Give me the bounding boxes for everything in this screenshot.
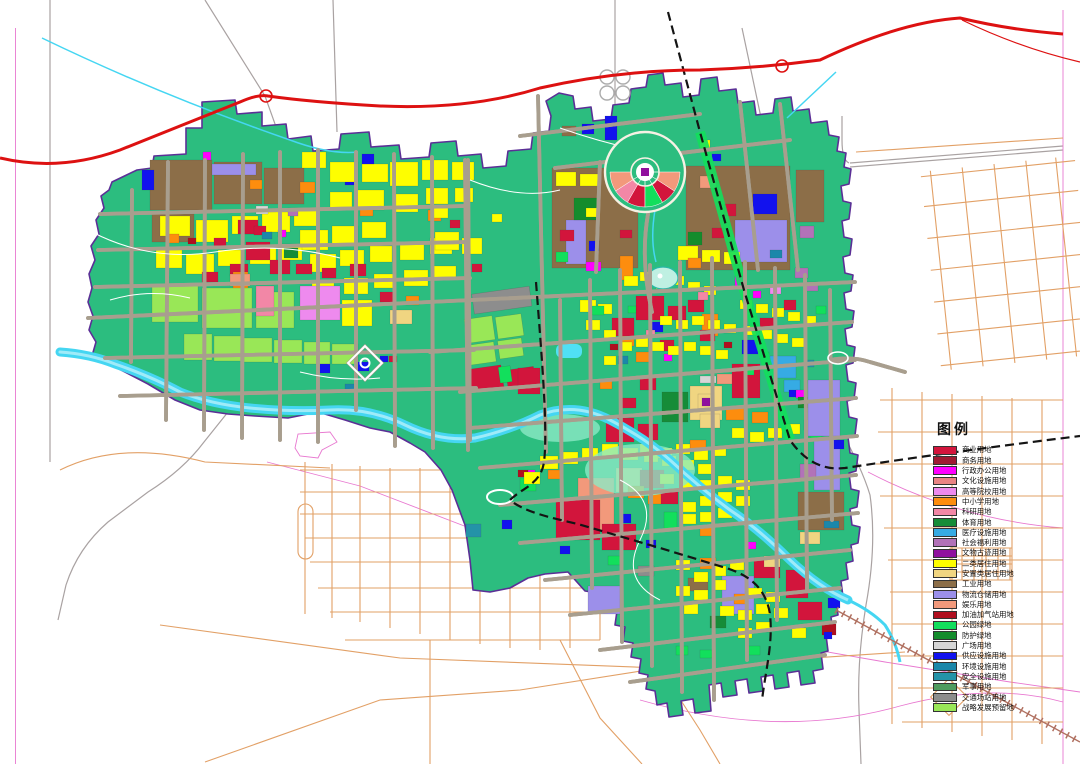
land-parcel <box>748 542 756 549</box>
legend-item: 高等院校用地 <box>933 486 1075 496</box>
land-parcel <box>322 268 336 278</box>
legend-item: 商务用地 <box>933 455 1075 465</box>
legend-item-label: 加油加气站用地 <box>962 611 1014 618</box>
road-segment <box>850 146 1063 163</box>
legend-item: 行政办公用地 <box>933 466 1075 476</box>
legend-item-label: 安置类居住用地 <box>962 570 1014 577</box>
land-parcel <box>636 338 648 347</box>
legend-item: 医疗设施用地 <box>933 527 1075 537</box>
legend-item: 商业用地 <box>933 445 1075 455</box>
legend-swatch <box>933 672 957 681</box>
land-parcel <box>262 212 290 232</box>
legend-item: 文化设施用地 <box>933 476 1075 486</box>
legend-swatch <box>933 466 957 475</box>
fan-shaped-district <box>605 132 685 212</box>
legend-item: 供应设施用地 <box>933 651 1075 661</box>
land-parcel <box>682 514 696 524</box>
land-parcel <box>753 194 777 214</box>
legend-item-label: 军事用地 <box>962 683 992 690</box>
land-parcel <box>218 250 242 266</box>
legend-swatch <box>933 549 957 558</box>
land-parcel <box>698 292 708 300</box>
legend-swatch <box>933 693 957 702</box>
land-parcel <box>796 390 805 398</box>
land-parcel <box>698 464 712 474</box>
legend-item: 物流仓储用地 <box>933 589 1075 599</box>
land-parcel <box>466 524 481 537</box>
land-parcel <box>566 220 586 264</box>
land-parcel <box>330 192 352 208</box>
land-parcel <box>452 162 474 180</box>
land-parcel <box>720 606 734 616</box>
land-parcel <box>834 440 844 449</box>
legend-swatch <box>933 508 957 517</box>
land-parcel <box>732 428 746 438</box>
land-parcel <box>560 230 574 241</box>
legend-item-label: 高等院校用地 <box>962 488 1006 495</box>
land-parcel <box>300 286 340 320</box>
legend-swatch <box>933 477 957 486</box>
legend-item-label: 商业用地 <box>962 446 992 453</box>
land-parcel <box>770 250 782 258</box>
legend-item-label: 供应设施用地 <box>962 652 1006 659</box>
legend-item: 中小学用地 <box>933 496 1075 506</box>
land-parcel <box>300 182 315 193</box>
land-parcel <box>660 316 672 325</box>
land-parcel <box>824 632 832 639</box>
legend-item-label: 体育用地 <box>962 519 992 526</box>
legend-item: 交通场站用地 <box>933 692 1075 702</box>
legend-swatch <box>933 528 957 537</box>
land-parcel <box>244 338 272 362</box>
legend-item-label: 医疗设施用地 <box>962 529 1006 536</box>
legend-item-label: 环境设施用地 <box>962 663 1006 670</box>
land-parcel <box>668 346 680 355</box>
land-parcel <box>684 604 698 614</box>
legend-swatch <box>933 652 957 661</box>
legend-item-label: 工业用地 <box>962 580 992 587</box>
legend-item-label: 科研用地 <box>962 508 992 515</box>
road-segment <box>856 138 1063 152</box>
land-parcel <box>214 238 226 246</box>
legend-swatch <box>933 611 957 620</box>
land-parcel <box>662 392 688 422</box>
land-parcel <box>692 316 704 325</box>
land-parcel <box>560 546 570 554</box>
land-parcel <box>652 342 664 351</box>
land-parcel <box>202 288 252 328</box>
land-parcel <box>264 168 304 204</box>
land-parcel <box>792 338 804 347</box>
legend-item-label: 社会福利用地 <box>962 539 1006 546</box>
land-parcel <box>784 300 796 310</box>
road-segment <box>921 161 1080 366</box>
legend-item: 文物古迹用地 <box>933 548 1075 558</box>
legend-item-label: 广场用地 <box>962 642 992 649</box>
legend-item-label: 交通场站用地 <box>962 694 1006 701</box>
land-parcel <box>717 374 733 384</box>
legend-item: 战略发展预留地 <box>933 702 1075 712</box>
road-segment <box>58 402 236 620</box>
legend-swatch <box>933 559 957 568</box>
land-parcel <box>716 350 728 359</box>
land-parcel <box>664 512 677 530</box>
land-parcel <box>362 154 374 164</box>
land-parcel <box>788 312 800 321</box>
land-parcel <box>798 602 822 620</box>
legend-swatch <box>933 703 957 712</box>
land-parcel <box>688 300 704 312</box>
land-parcel <box>700 414 720 428</box>
legend-item: 科研用地 <box>933 507 1075 517</box>
land-parcel <box>753 291 761 298</box>
legend-swatch <box>933 569 957 578</box>
land-parcel <box>682 502 696 512</box>
land-parcel <box>756 304 768 313</box>
legend-swatch <box>933 590 957 599</box>
land-parcel <box>495 314 524 339</box>
legend-item: 广场用地 <box>933 641 1075 651</box>
land-parcel <box>186 254 214 274</box>
legend-swatch <box>933 518 957 527</box>
land-parcel <box>776 334 788 343</box>
legend-item: 公园绿地 <box>933 620 1075 630</box>
land-parcel <box>694 590 708 600</box>
land-parcel <box>748 646 760 655</box>
land-parcel <box>700 346 712 355</box>
legend-item-label: 中小学用地 <box>962 498 999 505</box>
legend-rows: 商业用地商务用地行政办公用地文化设施用地高等院校用地中小学用地科研用地体育用地医… <box>933 445 1075 713</box>
land-parcel <box>586 262 601 271</box>
road-segment <box>205 668 660 762</box>
land-parcel <box>296 264 312 274</box>
legend-item-label: 公园绿地 <box>962 621 992 628</box>
legend-item: 二类居住用地 <box>933 558 1075 568</box>
legend-item-label: 防护绿地 <box>962 632 992 639</box>
land-parcel <box>518 368 540 394</box>
land-parcel <box>684 342 696 351</box>
land-parcel <box>450 220 460 228</box>
legend-swatch <box>933 662 957 671</box>
legend-swatch <box>933 456 957 465</box>
land-parcel <box>492 214 502 222</box>
land-parcel <box>422 160 448 180</box>
legend-item-label: 战略发展预留地 <box>962 704 1014 711</box>
land-parcel <box>620 230 632 238</box>
land-parcel <box>800 226 814 238</box>
land-parcel <box>712 154 721 161</box>
legend-swatch <box>933 580 957 589</box>
land-parcel <box>622 398 636 408</box>
land-parcel <box>586 320 600 330</box>
land-parcel <box>592 306 604 315</box>
land-parcel <box>548 470 560 479</box>
land-parcel <box>702 398 710 406</box>
land-parcel <box>605 116 617 140</box>
road-segment <box>930 158 1076 370</box>
land-parcel <box>370 246 392 262</box>
legend-item-label: 行政办公用地 <box>962 467 1006 474</box>
legend-swatch <box>933 446 957 455</box>
land-parcel <box>752 412 768 423</box>
land-parcel <box>502 520 512 529</box>
legend-swatch <box>933 538 957 547</box>
land-parcel <box>640 378 656 390</box>
legend-swatch <box>933 487 957 496</box>
legend-item-label: 商务用地 <box>962 457 992 464</box>
legend-item: 体育用地 <box>933 517 1075 527</box>
legend-swatch <box>933 497 957 506</box>
legend-swatch <box>933 641 957 650</box>
land-parcel <box>250 180 262 189</box>
legend-swatch <box>933 683 957 692</box>
road-segment <box>560 640 642 764</box>
land-parcel <box>498 366 512 384</box>
land-parcel <box>816 306 826 314</box>
legend-item: 工业用地 <box>933 579 1075 589</box>
land-parcel <box>694 572 708 582</box>
land-parcel <box>362 222 386 238</box>
land-parcel <box>792 628 806 638</box>
land-parcel <box>188 238 196 244</box>
legend-swatch <box>933 621 957 630</box>
legend-item: 防护绿地 <box>933 630 1075 640</box>
land-parcel <box>468 342 497 365</box>
legend-swatch <box>933 631 957 640</box>
legend-item-label: 安全设施用地 <box>962 673 1006 680</box>
land-parcel <box>604 356 616 365</box>
land-parcel <box>330 162 358 182</box>
land-parcel <box>350 264 366 276</box>
land-parcel <box>800 532 820 544</box>
land-parcel <box>628 306 636 313</box>
land-parcel <box>340 250 364 266</box>
legend-item-label: 物流仓储用地 <box>962 591 1006 598</box>
legend-item-label: 二类居住用地 <box>962 560 1006 567</box>
land-parcel <box>362 164 388 182</box>
land-parcel <box>160 216 190 236</box>
land-parcel <box>624 276 638 286</box>
land-parcel <box>636 352 649 362</box>
land-parcel <box>808 380 840 436</box>
land-parcel <box>688 232 702 245</box>
land-parcel <box>472 264 482 272</box>
land-parcel <box>142 170 154 190</box>
landuse-planning-map-page: 图例 商业用地商务用地行政办公用地文化设施用地高等院校用地中小学用地科研用地体育… <box>0 0 1080 764</box>
land-parcel <box>824 521 839 528</box>
legend-swatch <box>933 600 957 609</box>
legend-item-label: 文化设施用地 <box>962 477 1006 484</box>
legend-item: 军事用地 <box>933 682 1075 692</box>
land-parcel <box>556 172 576 186</box>
land-parcel <box>796 170 824 222</box>
legend-title: 图例 <box>937 419 1075 439</box>
legend-item: 加油加气站用地 <box>933 610 1075 620</box>
land-parcel <box>610 344 618 350</box>
land-parcel <box>212 164 256 175</box>
road-segment <box>333 0 337 132</box>
legend-item-label: 娱乐用地 <box>962 601 992 608</box>
land-parcel <box>688 258 701 268</box>
land-parcel <box>724 342 732 348</box>
legend-item: 娱乐用地 <box>933 599 1075 609</box>
land-parcel <box>700 650 712 658</box>
road-segment <box>850 150 1063 167</box>
land-parcel <box>726 408 744 420</box>
land-parcel <box>302 152 326 168</box>
land-parcel <box>150 160 212 210</box>
map-canvas <box>0 0 1080 764</box>
land-parcel <box>426 188 448 204</box>
land-parcel <box>262 232 272 239</box>
legend-item-label: 文物古迹用地 <box>962 549 1006 556</box>
legend-item: 环境设施用地 <box>933 661 1075 671</box>
land-parcel <box>580 174 598 186</box>
legend-item: 社会福利用地 <box>933 538 1075 548</box>
legend-item: 安置类居住用地 <box>933 569 1075 579</box>
legend-item: 安全设施用地 <box>933 672 1075 682</box>
land-parcel <box>608 556 620 565</box>
land-parcel <box>556 252 568 262</box>
land-parcel <box>750 432 764 442</box>
legend: 图例 商业用地商务用地行政办公用地文化设施用地高等院校用地中小学用地科研用地体育… <box>933 419 1075 713</box>
